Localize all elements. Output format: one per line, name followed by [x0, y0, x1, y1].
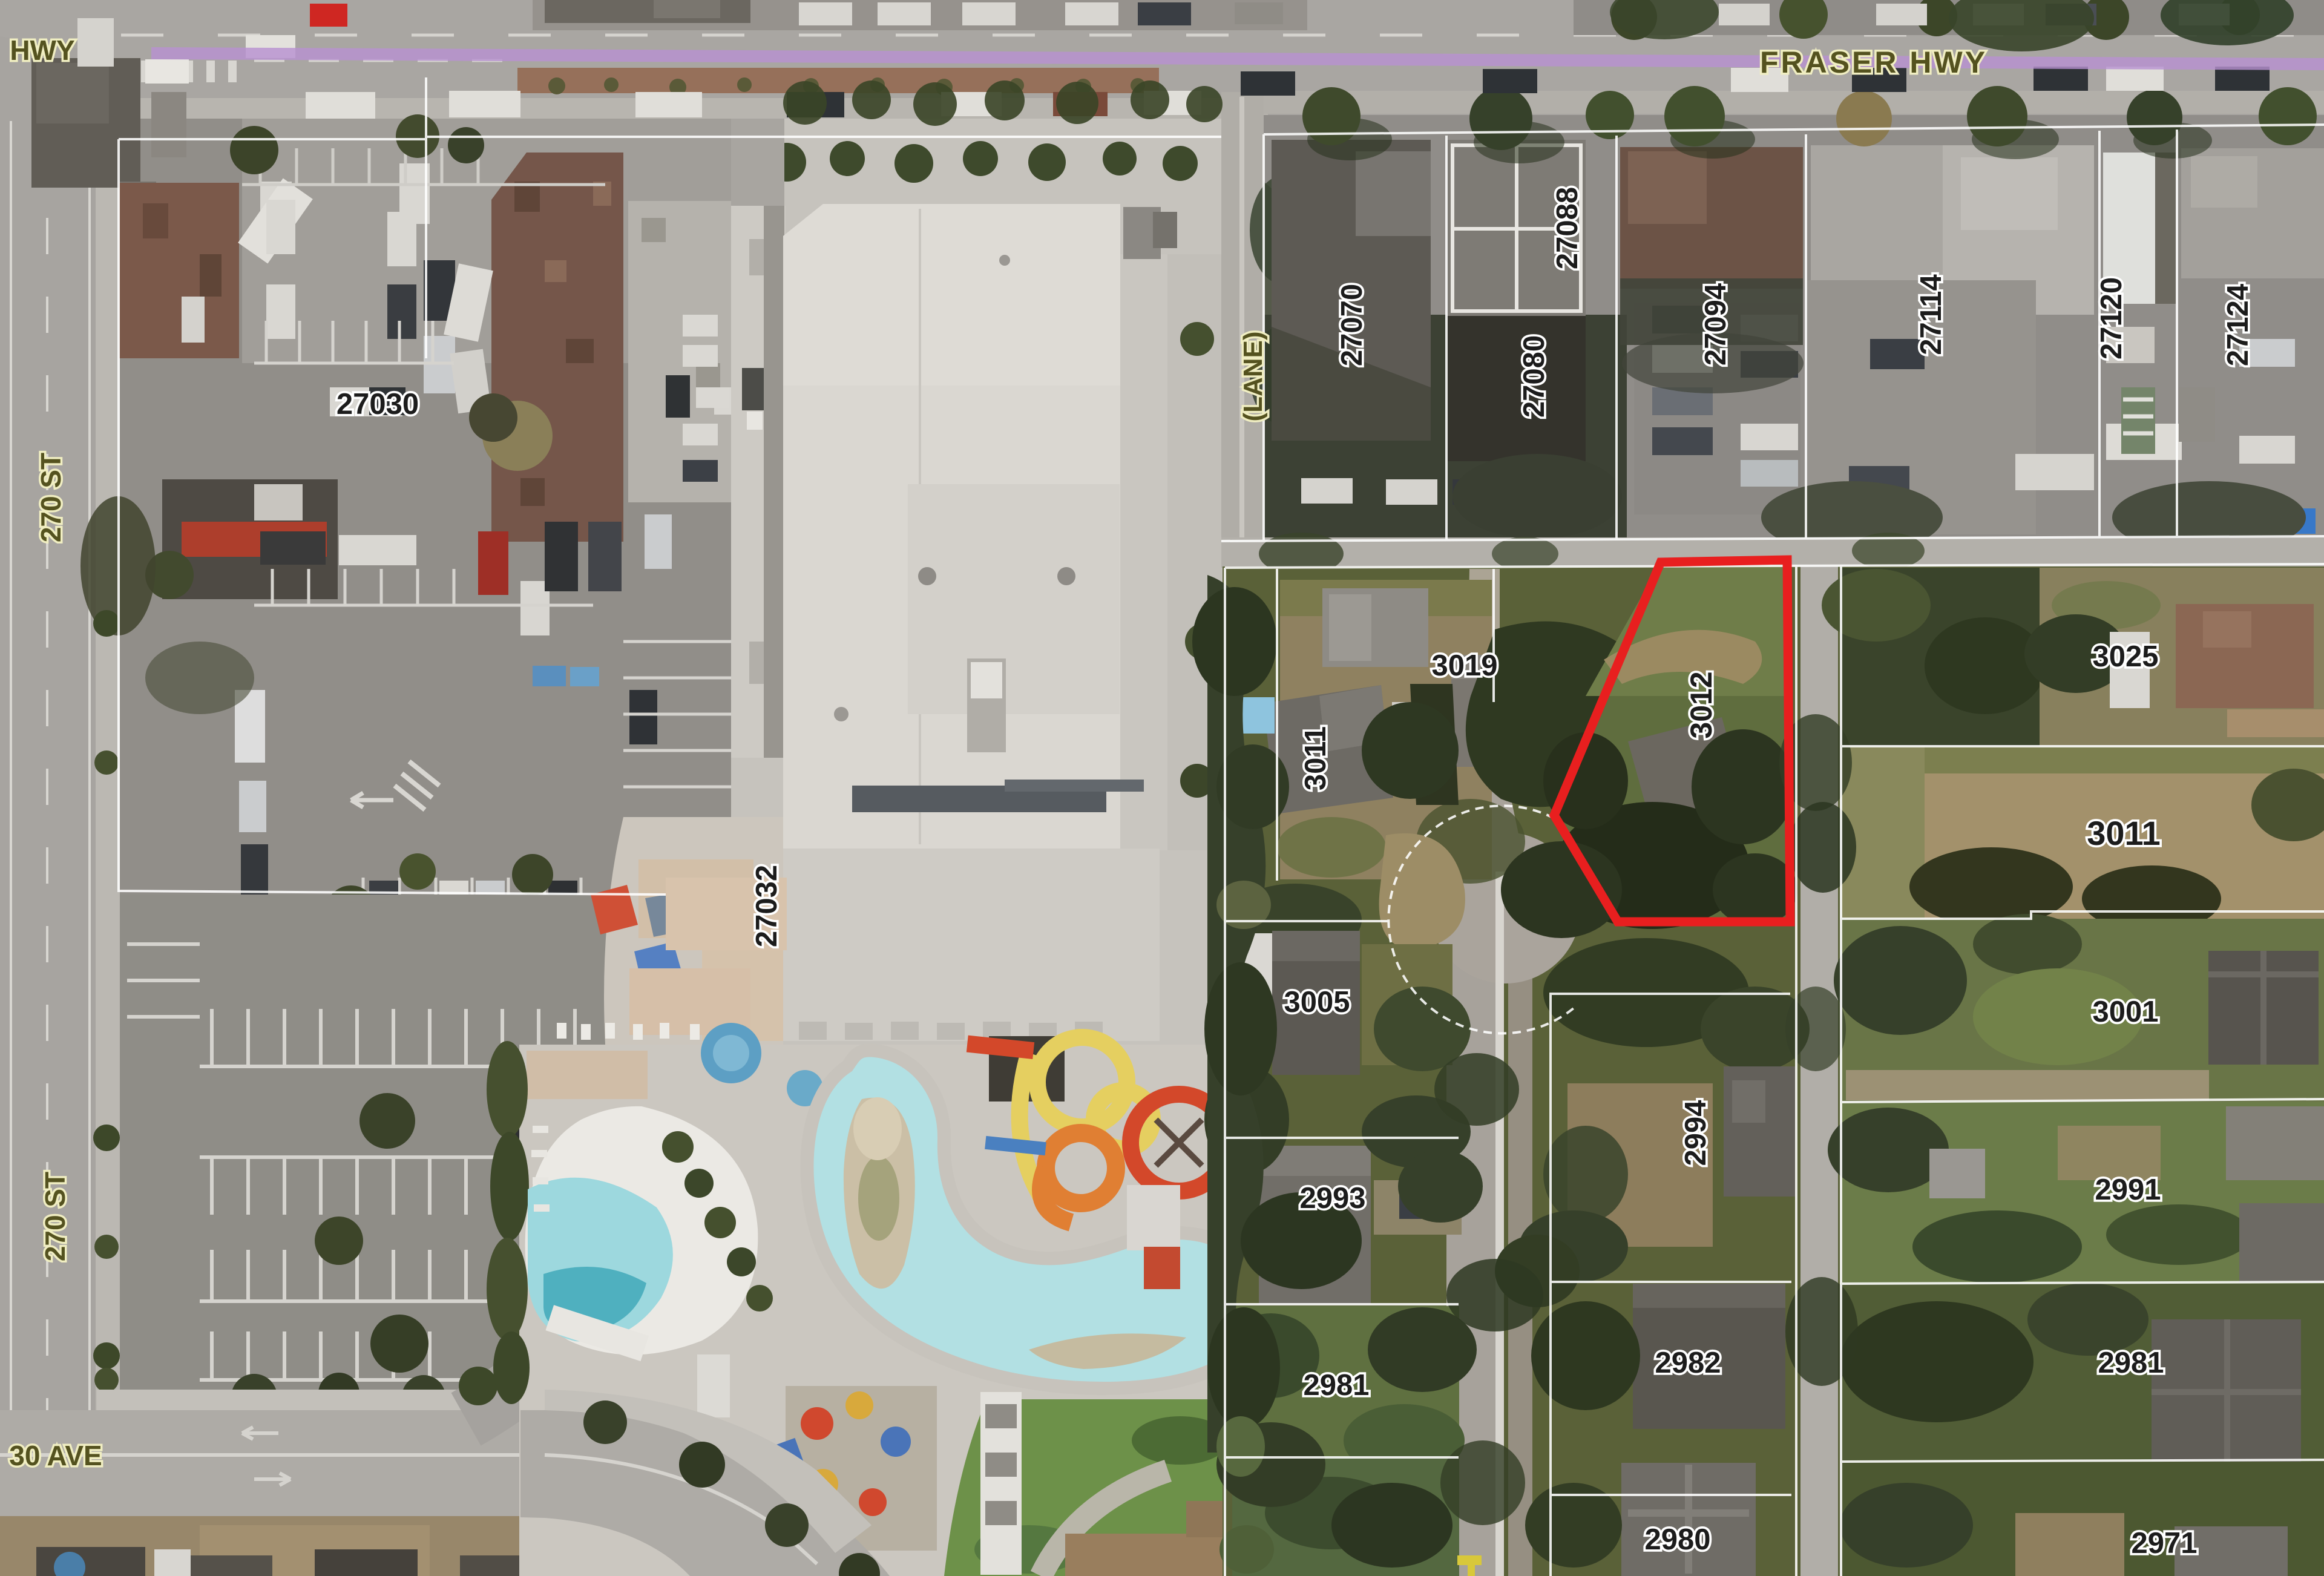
svg-text:HWY: HWY	[10, 34, 74, 66]
svg-text:3001: 3001	[2092, 996, 2158, 1028]
svg-text:3025: 3025	[2092, 640, 2158, 673]
svg-text:2981: 2981	[2098, 1347, 2164, 1379]
svg-text:27088: 27088	[1551, 187, 1584, 269]
svg-text:27070: 27070	[1336, 284, 1368, 366]
svg-text:FRASER HWY: FRASER HWY	[1760, 45, 1988, 79]
svg-text:27114: 27114	[1915, 274, 1948, 355]
svg-text:3005: 3005	[1284, 986, 1350, 1019]
svg-text:2991: 2991	[2095, 1174, 2161, 1206]
svg-text:27032: 27032	[750, 865, 783, 947]
svg-text:3012: 3012	[1684, 671, 1718, 738]
svg-text:2982: 2982	[1655, 1347, 1721, 1379]
svg-text:27120: 27120	[2095, 277, 2128, 360]
svg-text:(LANE): (LANE)	[1238, 331, 1268, 421]
svg-text:270 ST: 270 ST	[35, 453, 67, 542]
svg-text:2993: 2993	[1299, 1182, 1365, 1215]
svg-text:2981: 2981	[1303, 1369, 1369, 1402]
svg-text:30 AVE: 30 AVE	[9, 1440, 102, 1471]
svg-text:27094: 27094	[1699, 283, 1732, 366]
svg-text:27030: 27030	[336, 388, 419, 421]
svg-text:27124: 27124	[2222, 284, 2254, 366]
svg-text:27080: 27080	[1518, 335, 1551, 418]
svg-text:270 ST: 270 ST	[39, 1172, 71, 1261]
svg-text:2994: 2994	[1679, 1100, 1712, 1166]
svg-text:2980: 2980	[1644, 1523, 1710, 1556]
svg-text:3011: 3011	[1299, 726, 1332, 790]
svg-text:3019: 3019	[1431, 649, 1497, 682]
svg-text:2971: 2971	[2131, 1527, 2197, 1560]
svg-text:3011: 3011	[2087, 814, 2161, 852]
